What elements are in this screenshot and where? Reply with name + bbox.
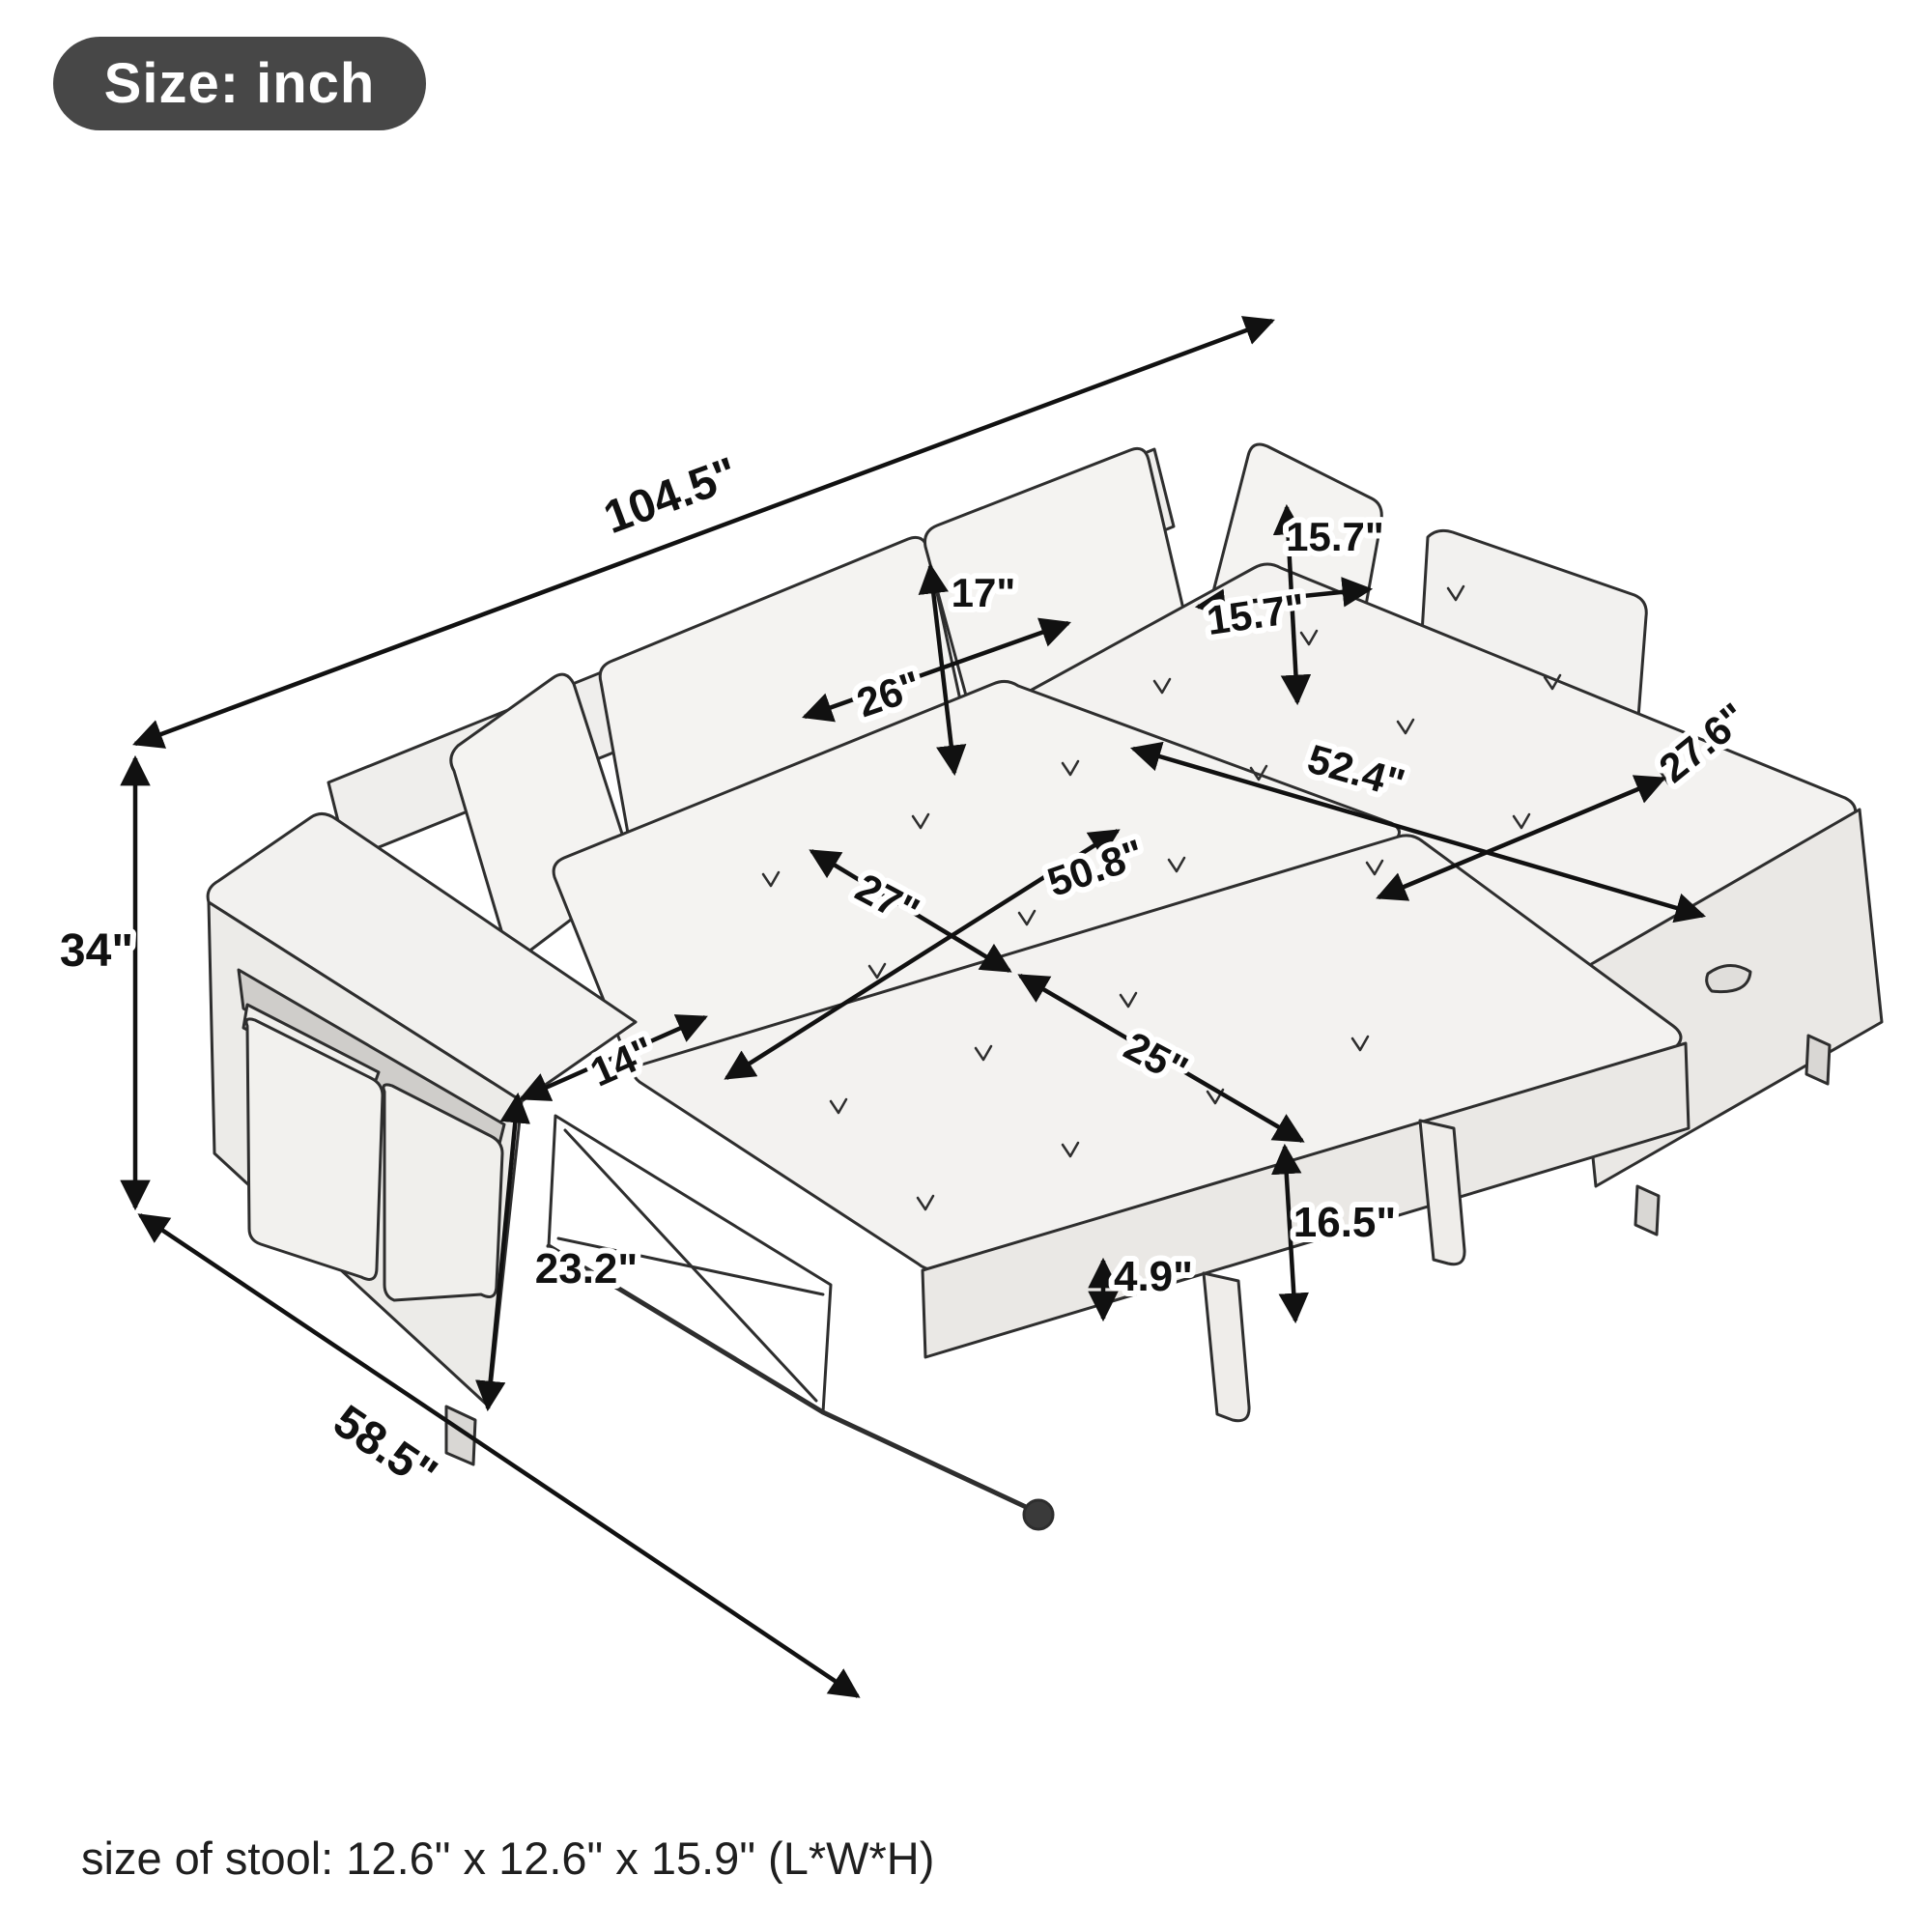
dim-value: 16.5" bbox=[1293, 1199, 1397, 1246]
dim-value: 58.5" bbox=[325, 1396, 446, 1501]
sofa-sketch bbox=[208, 444, 1882, 1529]
dim-mattress-thickness: 4.9" bbox=[1103, 1253, 1193, 1319]
dim-value: 17" bbox=[952, 570, 1016, 615]
storage-foot bbox=[1806, 1036, 1830, 1084]
dim-value: 104.5" bbox=[597, 448, 744, 544]
dimension-diagram: 104.5"34"58.5"17"26"15.7"15.7"52.4"27.6"… bbox=[0, 0, 1932, 1932]
stool-size-caption: size of stool: 12.6" x 12.6" x 15.9" (L*… bbox=[81, 1832, 934, 1885]
page: 104.5"34"58.5"17"26"15.7"15.7"52.4"27.6"… bbox=[0, 0, 1932, 1932]
dim-value: 34" bbox=[60, 925, 133, 977]
size-unit-label: Size: inch bbox=[104, 51, 376, 116]
bed-strap-leg bbox=[1204, 1273, 1249, 1421]
dim-value: 23.2" bbox=[535, 1245, 639, 1293]
dim-overall-height: 34" bbox=[60, 758, 135, 1207]
dim-value: 15.7" bbox=[1286, 514, 1384, 559]
size-unit-badge: Size: inch bbox=[53, 37, 426, 130]
dim-value: 4.9" bbox=[1114, 1253, 1193, 1300]
storage-foot bbox=[1635, 1186, 1659, 1235]
